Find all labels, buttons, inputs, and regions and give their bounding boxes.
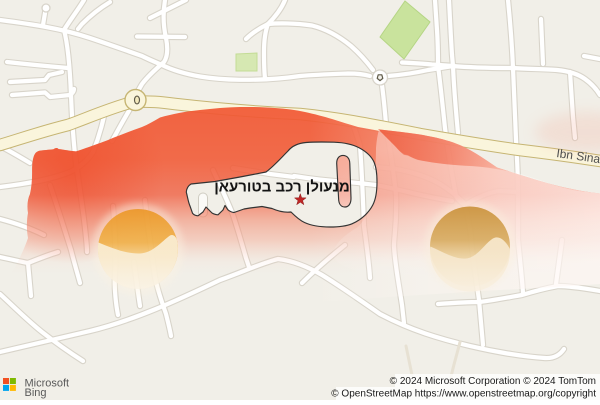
svg-text:© 2024 Microsoft Corporation ©: © 2024 Microsoft Corporation © 2024 TomT… [390,376,596,387]
svg-text:מנעולן רכב בטורעאן: מנעולן רכב בטורעאן [214,179,350,196]
svg-text:© OpenStreetMap https://www.op: © OpenStreetMap https://www.openstreetma… [331,389,596,400]
svg-text:Bing: Bing [25,387,47,399]
